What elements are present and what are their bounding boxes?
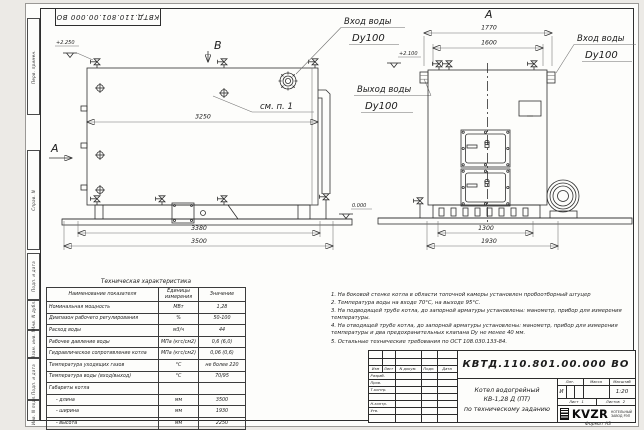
table-header-row: Наименование показателя Единицы измерени… — [47, 288, 246, 302]
elevation-mark-icon — [63, 53, 77, 58]
title-block: Изм Лист N докум. Подп. Дата Разраб. Про… — [368, 350, 636, 423]
tb-mass-label: Масса — [583, 378, 609, 385]
format-note: Формат А3 — [556, 422, 640, 427]
margin-cell-sprav-n: Справ. N — [27, 150, 40, 250]
elevation-mid: +2.100 — [399, 51, 418, 57]
tb-role-nkontr: Н.контр. — [369, 400, 395, 407]
table-row: Температура воды (вход/выход)°С70/95 — [47, 371, 246, 383]
furnace-door-upper — [461, 130, 510, 167]
control-box — [519, 101, 541, 116]
table-row: Температура уходящих газов°Сне более 220 — [47, 360, 246, 372]
outlet-dn-label: Dy100 — [365, 101, 398, 112]
valve-icon — [91, 59, 101, 68]
lifting-point-icon — [219, 88, 229, 98]
drain-valve-icon — [91, 196, 101, 205]
table-row: Гидравлическое сопротивление котлаМПа (к… — [47, 348, 246, 360]
dim-3500: 3500 — [191, 238, 207, 245]
inlet-dn-label: Dy100 — [352, 33, 385, 44]
elevation-mark-icon — [387, 63, 401, 68]
lifting-point-icon — [95, 150, 105, 160]
section-b-label: В — [214, 39, 222, 52]
kvzr-logo-subtitle: КОТЕЛЬНЫЙ ЗАВОД РЭП — [611, 410, 632, 418]
note-3: 3. На подводящей трубе котла, до запорно… — [331, 308, 634, 322]
table-row: Рабочее давление водыМПа (кгс/см2)0,6 (6… — [47, 336, 246, 348]
drain-valve-icon — [156, 196, 166, 205]
dim-1600: 1600 — [481, 40, 497, 47]
margin-cell-inv-podl: Инв. N подл. — [27, 400, 40, 421]
tb-col-list: Лист — [382, 365, 395, 372]
table-row: - высотамм2250 — [47, 417, 246, 429]
margin-cell-podp-data-2: Подп. и дата — [27, 358, 40, 400]
document-number: КВТД.110.801.00.000 ВО — [457, 351, 635, 378]
tb-scale-label: Масштаб — [609, 378, 635, 385]
tb-lit-value: И — [557, 385, 566, 398]
tb-scale-value: 1:20 — [609, 385, 635, 398]
tb-role-utv: Утв. — [369, 407, 395, 414]
boiler-body-side — [87, 68, 318, 205]
inlet-water-label: Вход воды — [344, 17, 392, 27]
dim-3250: 3250 — [195, 114, 211, 121]
inlet-water-label-right: Вход воды — [577, 34, 625, 44]
tb-sheet: Лист1 — [557, 398, 596, 405]
drawing-canvas: 3250 см. п. 1 В +2.250 А — [0, 0, 644, 430]
margin-cell-vzam-inv: Взам. инв. N — [27, 330, 40, 358]
tech-table: Наименование показателя Единицы измерени… — [46, 287, 246, 430]
tb-col-podp: Подп. — [421, 365, 437, 372]
valve-icon — [309, 59, 319, 68]
side-view: 3250 см. п. 1 В +2.250 А — [49, 17, 431, 250]
kvzr-logo-text: KVZR — [572, 407, 608, 421]
lifting-point-icon — [95, 83, 105, 93]
valve-icon — [528, 61, 538, 70]
dim-1930: 1930 — [481, 238, 497, 245]
tb-lit-label: Лит. — [557, 378, 583, 385]
dim-1300: 1300 — [478, 225, 494, 232]
see-note-label: см. п. 1 — [260, 102, 293, 112]
downpipe-valve-icon — [320, 194, 330, 203]
table-row: - ширинамм1930 — [47, 406, 246, 418]
outlet-water-label: Выход воды — [357, 85, 411, 95]
elevation-mark-icon — [339, 214, 353, 219]
dim-1770: 1770 — [481, 25, 497, 32]
table-row: Диапазон рабочего регулирования%50-100 — [47, 313, 246, 325]
tech-table-title: Техническая характеристика — [46, 279, 246, 285]
margin-cell-perv-primen: Перв. примен. — [27, 18, 40, 115]
valve-icon — [443, 61, 453, 70]
table-row: - длинамм3500 — [47, 394, 246, 406]
tb-sheets: Листов2 — [596, 398, 635, 405]
valve-icon — [433, 61, 443, 70]
tb-role-prov: Пров. — [369, 379, 395, 386]
product-name: Котел водогрейный КВ-1,28 Д (ПТ) по техн… — [457, 378, 557, 422]
valve-icon — [218, 59, 228, 68]
table-row: Габариты котла — [47, 383, 246, 395]
view-a-title: А — [484, 8, 493, 21]
lifting-point-icon — [95, 185, 105, 195]
blower-fan — [547, 180, 579, 218]
technical-notes: 1. На боковой стенке котла в области топ… — [331, 292, 634, 347]
furnace-door-lower — [461, 169, 510, 206]
view-a-arrow-label: А — [50, 142, 59, 155]
margin-cell-inv-dubl: Инв. N дубл. — [27, 300, 40, 330]
company-logo: KVZR КОТЕЛЬНЫЙ ЗАВОД РЭП — [557, 405, 635, 422]
tb-role-tkontr: Т.контр. — [369, 386, 395, 393]
kvzr-logo-icon — [560, 408, 569, 420]
elevation-zero: 0.000 — [352, 203, 366, 209]
note-1: 1. На боковой стенке котла в области топ… — [331, 292, 634, 299]
tb-col-ndokum: N докум. — [395, 365, 421, 372]
table-row: Расход водым3/ч44 — [47, 325, 246, 337]
tb-col-izm: Изм — [369, 365, 382, 372]
side-valve-icon — [414, 198, 424, 207]
inlet-dn-label-right: Dy100 — [585, 50, 618, 61]
tech-characteristics: Техническая характеристика Наименование … — [46, 279, 246, 430]
note-2: 2. Температура воды на входе 70°С, на вы… — [331, 300, 634, 307]
drain-valve-icon — [218, 196, 228, 205]
note-5: 5. Остальные технические требования по О… — [331, 339, 634, 346]
tb-col-data: Дата — [437, 365, 457, 372]
elevation-top: +2.250 — [56, 40, 75, 46]
front-view: А 1770 1600 — [378, 8, 636, 250]
margin-cell-podp-data-1: Подп. и дата — [27, 253, 40, 300]
table-row: Номинальная мощностьМВт1,28 — [47, 302, 246, 314]
inlet-flange-icon — [279, 72, 298, 91]
note-4: 4. На отводящей трубе котла, до запорной… — [331, 323, 634, 337]
dim-3380: 3380 — [191, 225, 207, 232]
top-stamp: КВТД.110.801.00.000 ВО — [55, 8, 161, 26]
tb-role-razrab: Разраб. — [369, 372, 395, 379]
